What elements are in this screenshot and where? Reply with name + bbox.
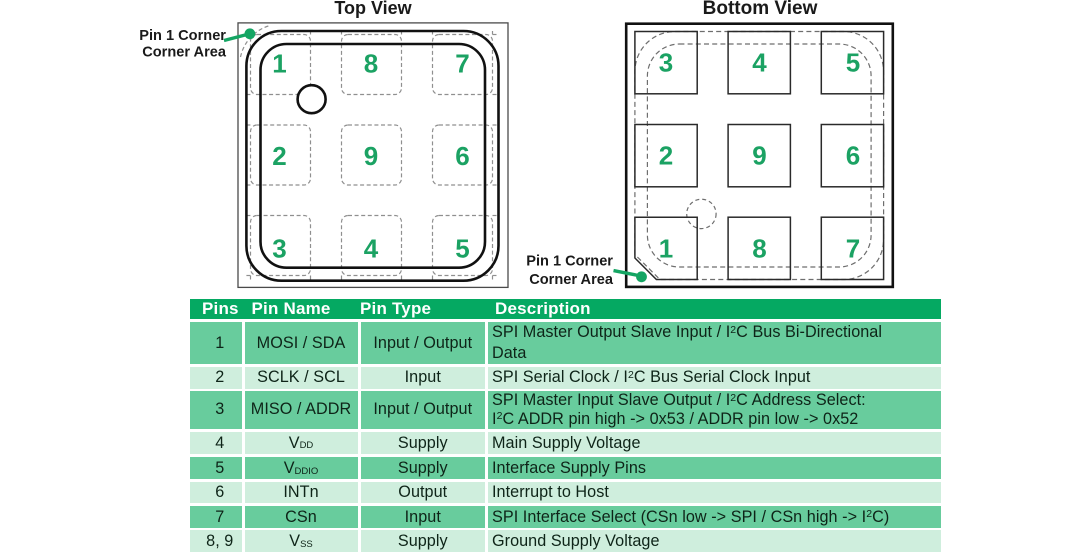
svg-text:2: 2 [659, 141, 673, 171]
svg-text:Bottom View: Bottom View [703, 0, 818, 19]
svg-text:9: 9 [752, 141, 766, 171]
svg-text:7: 7 [455, 49, 469, 79]
svg-text:Corner Area: Corner Area [529, 272, 614, 288]
svg-text:5: 5 [455, 234, 469, 264]
svg-text:3: 3 [272, 234, 286, 264]
svg-text:8: 8 [364, 49, 378, 79]
svg-text:3: 3 [659, 48, 673, 78]
svg-text:6: 6 [846, 141, 860, 171]
svg-text:9: 9 [364, 141, 378, 171]
svg-text:2: 2 [272, 141, 286, 171]
svg-text:8: 8 [752, 234, 766, 264]
svg-text:6: 6 [455, 141, 469, 171]
svg-text:Top View: Top View [334, 0, 412, 18]
svg-text:Corner Area: Corner Area [142, 45, 227, 61]
svg-text:5: 5 [846, 48, 860, 78]
svg-text:4: 4 [752, 48, 767, 78]
svg-text:Pin 1 Corner: Pin 1 Corner [139, 28, 226, 44]
svg-text:1: 1 [659, 234, 673, 264]
svg-text:4: 4 [364, 234, 379, 264]
svg-text:Pin 1 Corner: Pin 1 Corner [526, 254, 613, 270]
svg-text:1: 1 [272, 49, 286, 79]
svg-text:7: 7 [846, 234, 860, 264]
